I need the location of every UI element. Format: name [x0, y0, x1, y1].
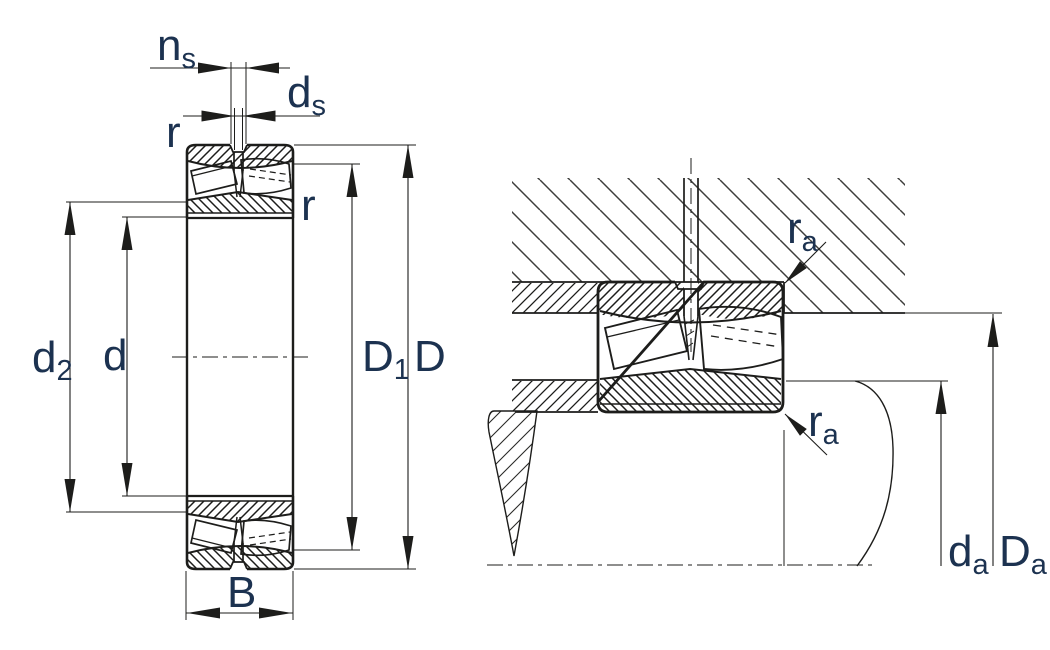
- dim-Da: [988, 314, 999, 566]
- label-B: B: [227, 568, 256, 617]
- diagram-canvas: ns ds r r d2 d D1 D B ra ra da Da: [0, 0, 1050, 650]
- dimension-labels: ns ds r r d2 d D1 D B ra ra da Da: [32, 21, 1048, 617]
- label-ra-lower: ra: [808, 397, 840, 451]
- bearing-diagram: ns ds r r d2 d D1 D B ra ra da Da: [0, 0, 1050, 650]
- label-ds: ds: [287, 68, 326, 122]
- label-ns: ns: [157, 21, 196, 75]
- label-da: da: [948, 527, 989, 581]
- dim-da: [936, 381, 947, 566]
- right-view-mounting-section: [487, 158, 1002, 566]
- shaft-broken-section: [488, 411, 537, 556]
- shaft-shoulder-band: [512, 381, 598, 411]
- label-D: D: [414, 332, 446, 381]
- housing-shoulder-band: [512, 283, 598, 313]
- left-view-bearing-section: [172, 145, 308, 569]
- label-Da: Da: [999, 527, 1048, 581]
- label-D1: D1: [362, 332, 410, 386]
- label-r-outer: r: [166, 108, 181, 157]
- label-r-inner: r: [301, 181, 316, 230]
- dim-D1: [347, 164, 358, 550]
- label-d: d: [103, 331, 127, 380]
- label-d2: d2: [32, 333, 73, 387]
- shaft-fillet-profile: [855, 381, 893, 566]
